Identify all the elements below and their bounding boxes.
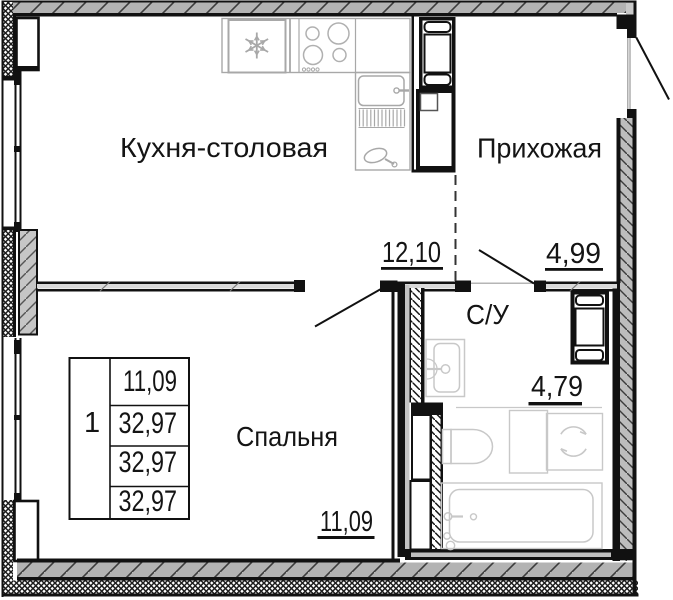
svg-text:11,09: 11,09 [123,365,177,398]
svg-text:12,10: 12,10 [382,237,441,269]
svg-text:32,97: 32,97 [119,485,178,518]
svg-text:32,97: 32,97 [119,446,178,479]
svg-text:Кухня-столовая: Кухня-столовая [120,132,328,163]
svg-text:1: 1 [84,407,100,439]
svg-text:Спальня: Спальня [236,421,338,452]
svg-text:4,79: 4,79 [531,371,583,403]
svg-text:32,97: 32,97 [119,407,178,440]
svg-text:Прихожая: Прихожая [477,133,602,164]
svg-text:С/У: С/У [466,299,509,330]
svg-text:11,09: 11,09 [320,506,373,538]
svg-text:4,99: 4,99 [546,238,601,270]
